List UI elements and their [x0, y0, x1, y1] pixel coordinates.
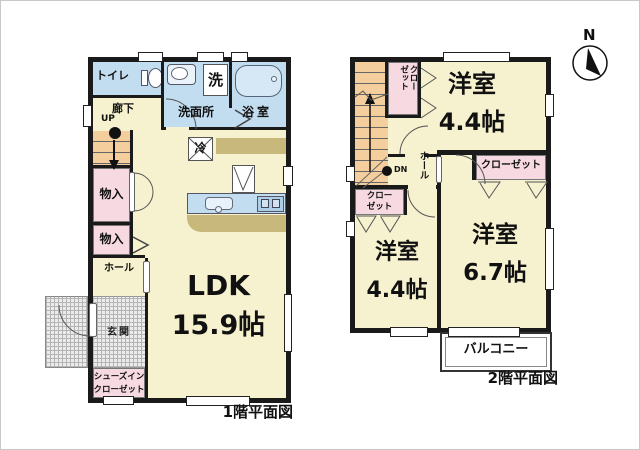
bedroom-top-label: 洋室: [427, 71, 517, 97]
shoe-closet-line1: シューズイン: [93, 371, 145, 384]
balcony-label: バルコニー: [448, 343, 544, 357]
room-storage-2: 物入: [93, 225, 130, 255]
window: [103, 396, 134, 405]
wall: [93, 222, 130, 225]
window: [545, 228, 554, 290]
bedroom-top-size: 4.4帖: [422, 109, 522, 135]
wall: [388, 115, 421, 118]
closet-right-label: クローゼット: [476, 160, 546, 171]
window: [138, 52, 163, 62]
washbasin-bowl-icon: [171, 67, 188, 80]
wall: [93, 95, 164, 98]
storage-2-label: 物入: [99, 233, 123, 246]
closet-left-label: クロー ゼット: [355, 191, 404, 214]
room-entrance: 玄関: [93, 297, 145, 367]
stair-down-dot: [382, 166, 392, 176]
toilet-label: トイレ: [96, 70, 129, 82]
fridge-label: 冷: [188, 137, 213, 161]
bedroom-left-size: 4.4帖: [356, 279, 438, 303]
floor1-caption: 1階平面図: [203, 404, 293, 421]
entrance-step-line: [93, 296, 145, 297]
compass-needle: [586, 48, 601, 76]
storage-1-label: 物入: [99, 188, 123, 201]
wall: [93, 165, 130, 168]
window: [448, 327, 520, 337]
bedroom-right-label: 洋室: [459, 223, 531, 248]
closet-top-col2: ゼット: [398, 65, 407, 113]
window: [231, 52, 248, 62]
burner-icon: [261, 199, 269, 208]
entrance-step-line: [93, 367, 145, 368]
door-opening: [166, 127, 189, 130]
window: [283, 166, 293, 186]
window: [346, 166, 355, 182]
washing-machine-icon: 洗: [203, 64, 228, 96]
hall-1f-label: ホール: [93, 263, 145, 274]
door-opening: [129, 172, 135, 212]
bedroom-left-label: 洋室: [361, 241, 433, 265]
stair-start-dot: [109, 127, 121, 139]
wall: [229, 62, 232, 108]
entrance-porch: [45, 296, 88, 368]
floor2-caption: 2階平面図: [468, 370, 558, 387]
toilet-tank-icon: [141, 70, 148, 86]
room-storage-1: 物入: [93, 168, 130, 222]
window: [545, 94, 554, 117]
wall: [418, 62, 421, 118]
kitchen-island: [187, 215, 286, 232]
front-door-panel: [89, 303, 97, 337]
corridor-label: 廊下: [112, 103, 134, 115]
ldk-label: LDK: [146, 271, 291, 302]
wall: [404, 189, 407, 215]
pantry-box-icon: [232, 165, 255, 193]
compass-circle: [573, 46, 607, 80]
floor-plan-image: 物入 物入 玄関 洗 トイレ: [0, 0, 640, 450]
drain-icon: [271, 76, 277, 82]
washroom-label: 洗面所: [166, 106, 226, 119]
kitchen-cabinet: [216, 138, 286, 154]
compass-north-label: N: [583, 27, 596, 44]
door-opening: [436, 156, 442, 183]
wall: [437, 150, 546, 155]
hall-2f-label: ホール: [417, 151, 427, 189]
window: [197, 52, 224, 62]
closet-left-line2: ゼット: [355, 202, 404, 213]
entrance-label: 玄関: [107, 327, 131, 338]
up-label: UP: [101, 115, 115, 125]
wall: [385, 62, 388, 118]
compass-icon: [573, 46, 607, 80]
window: [346, 221, 355, 237]
closet-left-line1: クロー: [355, 191, 404, 202]
shoe-closet-label: シューズイン クローゼット: [93, 371, 145, 397]
washing-machine-label: 洗: [208, 72, 223, 89]
wall: [388, 154, 405, 157]
burner-icon: [272, 199, 280, 208]
closet-top-col1: クロー: [408, 65, 417, 113]
window: [390, 327, 428, 337]
dn-label: DN: [394, 166, 407, 175]
closet-top-label: クロー ゼット: [390, 65, 417, 113]
ldk-size-label: 15.9帖: [141, 311, 296, 341]
shoe-closet-line2: クローゼット: [93, 384, 145, 397]
window: [83, 105, 92, 127]
faucet-icon: [215, 206, 222, 213]
window: [443, 52, 510, 62]
bedroom-right-size: 6.7帖: [454, 261, 536, 286]
bathroom-label: 浴室: [230, 106, 284, 119]
wall: [93, 255, 145, 258]
